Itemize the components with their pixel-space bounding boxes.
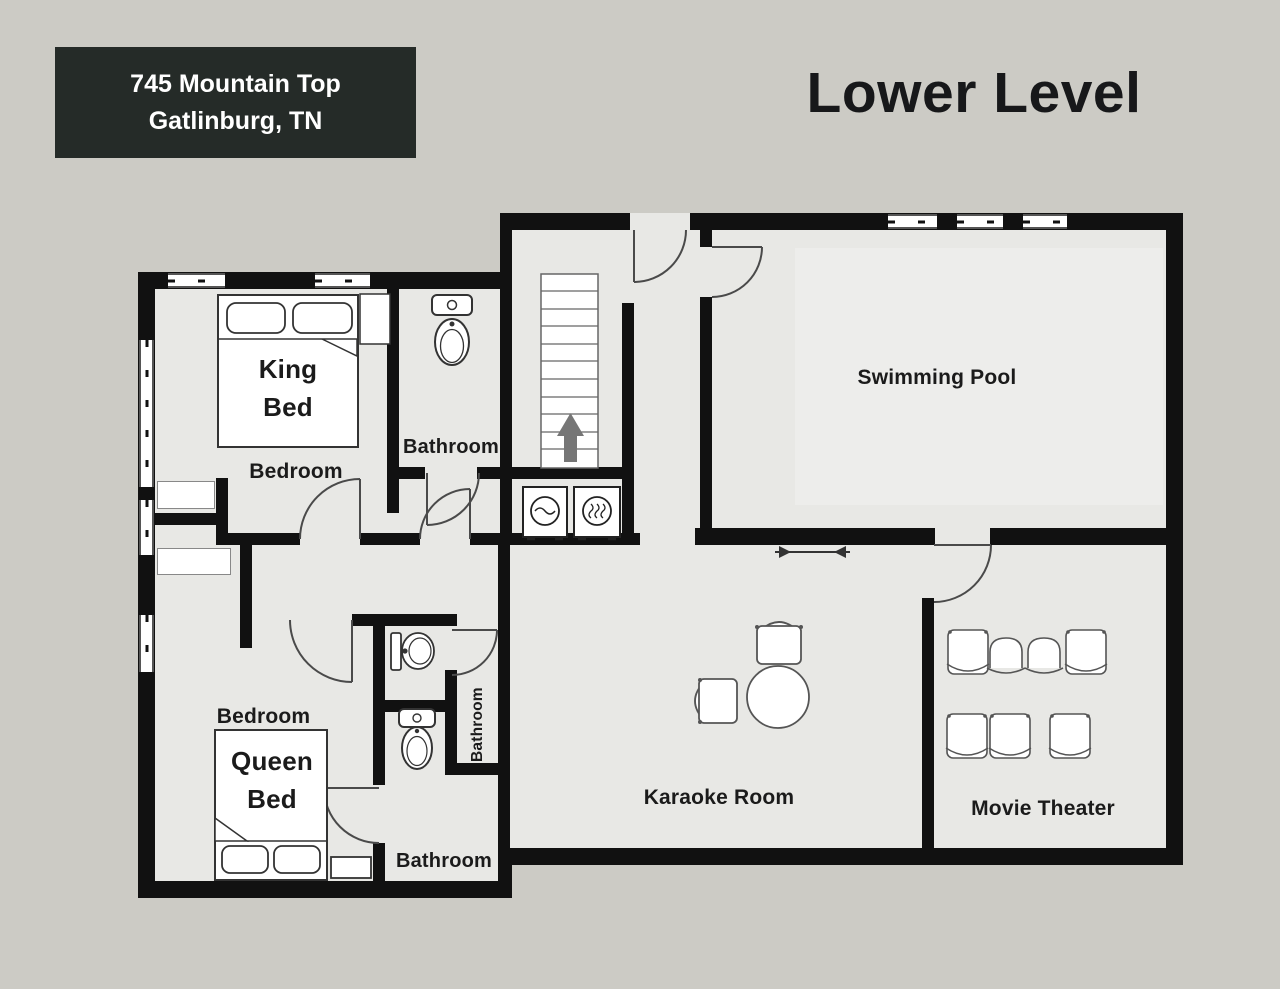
karaoke-room-label: Karaoke Room: [619, 786, 819, 810]
dryer-icon: [574, 487, 620, 539]
bathroom-middle-label: Bathroom: [461, 660, 495, 790]
toilet-icon: [399, 709, 435, 769]
movie-theater-label: Movie Theater: [943, 797, 1143, 821]
stairs-up-icon: [541, 274, 598, 468]
washer-icon: [523, 487, 567, 539]
theater-seat-icon: [946, 630, 1107, 758]
sliding-door-arrow-icon: [775, 546, 850, 558]
bathroom-lower-label: Bathroom: [374, 850, 514, 873]
swimming-pool-label: Swimming Pool: [817, 366, 1057, 390]
bathroom-upper-label: Bathroom: [391, 436, 511, 459]
floor-plan-page: 745 Mountain Top Gatlinburg, TN Lower Le…: [0, 0, 1280, 989]
sink-icon: [391, 633, 434, 670]
chair-icon: [755, 622, 803, 664]
door-arc-icon: [290, 230, 991, 843]
king-bed-label: King Bed: [236, 350, 340, 426]
bedroom-queen-label: Bedroom: [191, 705, 336, 729]
chair-icon: [695, 678, 737, 724]
queen-bed-label: Queen Bed: [220, 742, 324, 818]
bedroom-king-label: Bedroom: [226, 460, 366, 484]
toilet-icon: [432, 295, 472, 365]
round-table-icon: [747, 666, 809, 728]
plan-overlay: [0, 0, 1280, 989]
